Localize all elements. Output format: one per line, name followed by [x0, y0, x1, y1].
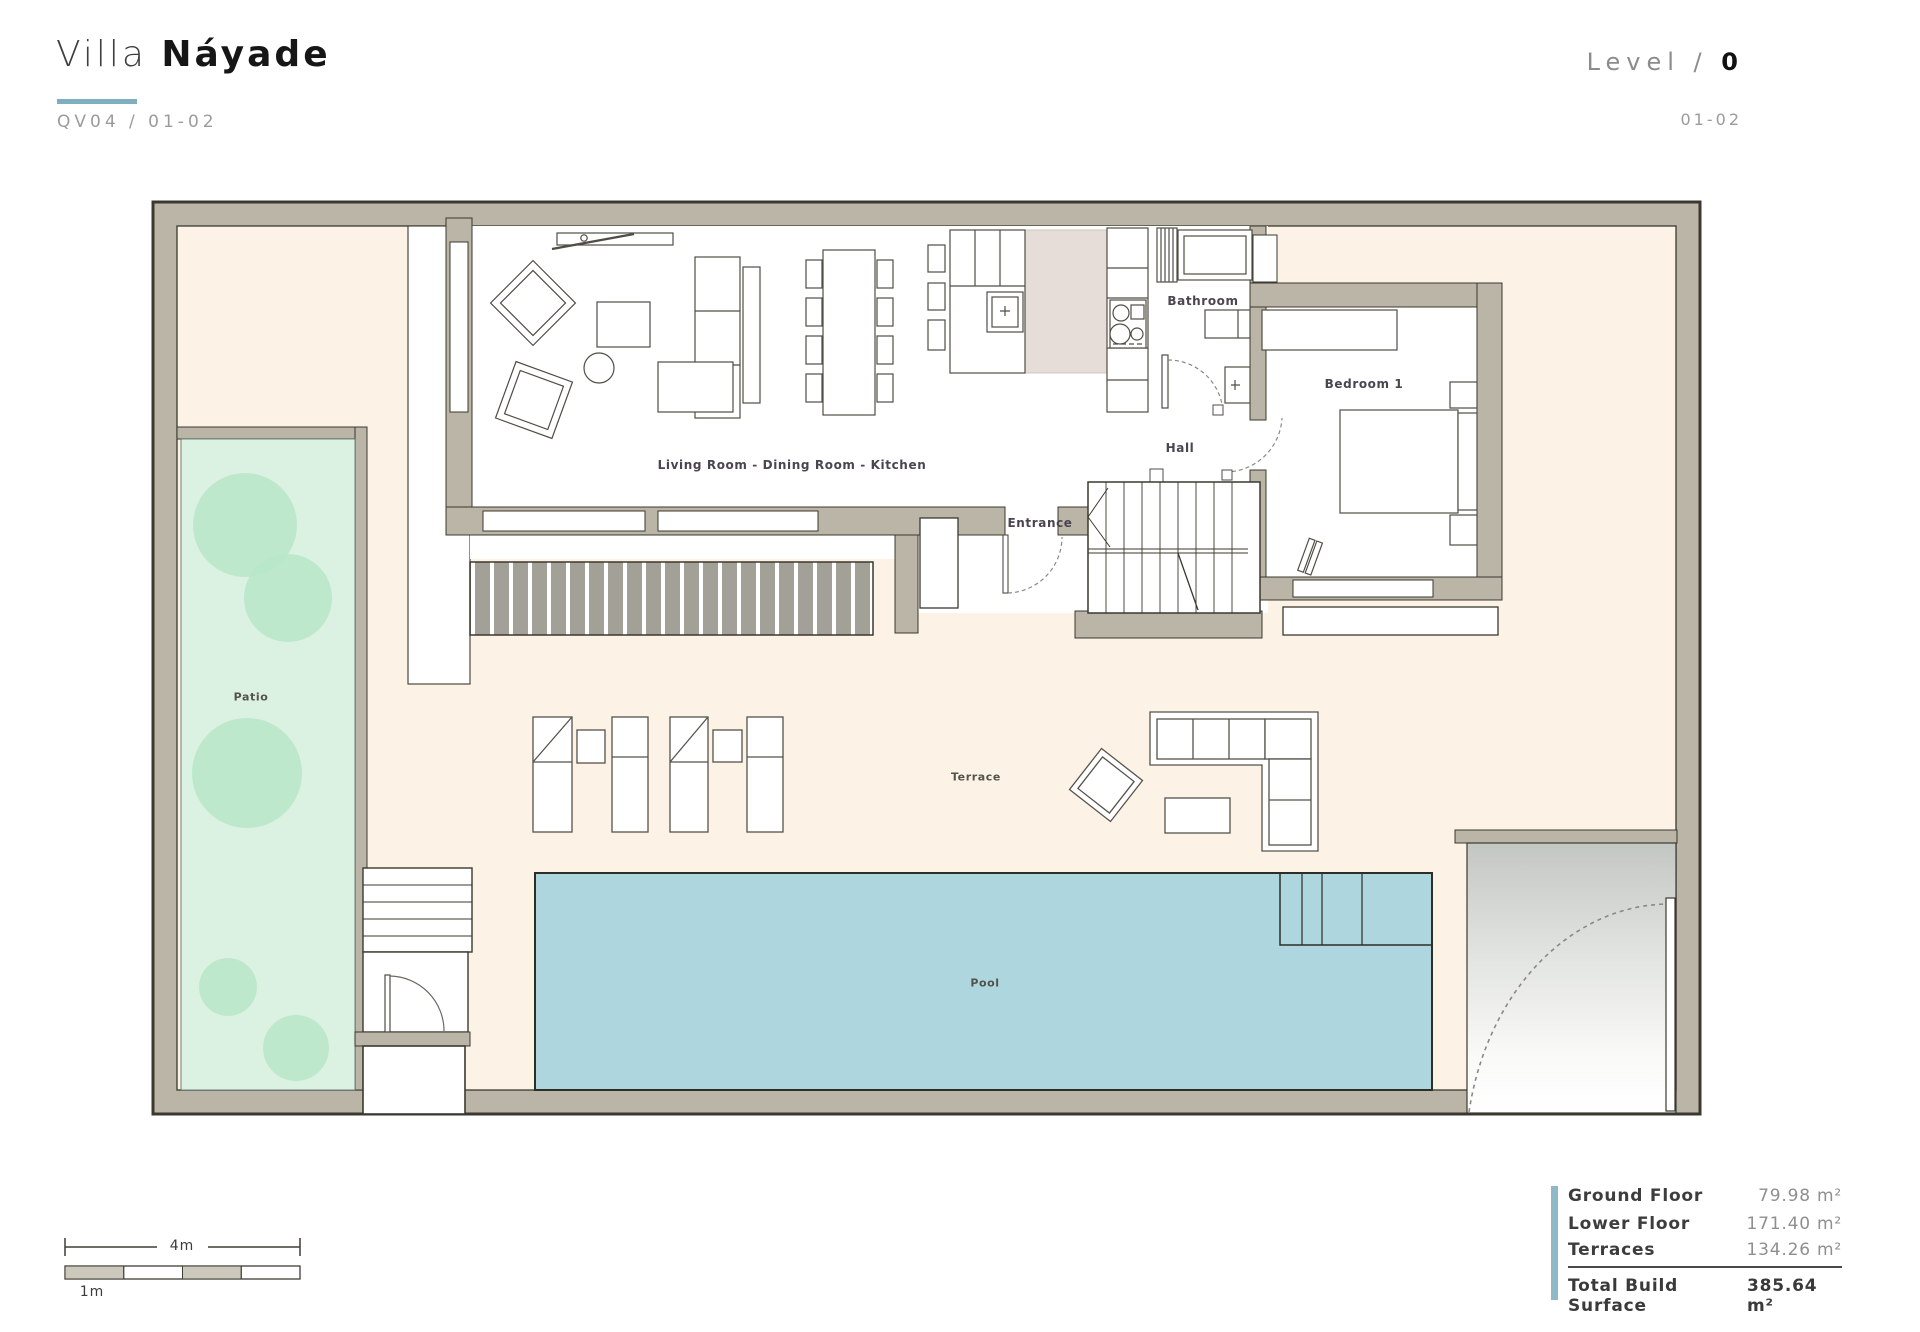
summary-divider — [1568, 1266, 1842, 1268]
summary-value: 171.40 m² — [1747, 1214, 1842, 1234]
bar-stool — [928, 245, 945, 272]
ottoman — [597, 302, 650, 347]
bedroom-south-window — [1293, 580, 1433, 597]
headboard — [1458, 413, 1477, 510]
sun-lounger-3 — [670, 717, 708, 832]
living-south-window-1 — [483, 511, 645, 531]
sun-lounger-1 — [533, 717, 572, 832]
label-patio: Patio — [234, 691, 269, 704]
summary-row-terraces: Terraces 134.26 m² — [1568, 1240, 1842, 1260]
entrance-door-leaf — [1003, 535, 1008, 593]
planter — [1283, 607, 1498, 635]
summary-label: Lower Floor — [1568, 1214, 1690, 1234]
summary-value: 134.26 m² — [1747, 1240, 1842, 1260]
shower-screen — [1157, 228, 1177, 282]
label-terrace: Terrace — [951, 771, 1001, 784]
level-value: 0 — [1721, 48, 1744, 76]
storage-room — [355, 952, 470, 1114]
lounger-table — [713, 730, 742, 762]
summary-label: Terraces — [1568, 1240, 1655, 1260]
driveway — [1455, 830, 1677, 1113]
side-table — [584, 353, 614, 383]
label-entrance: Entrance — [1007, 516, 1072, 530]
summary-row-lower-floor: Lower Floor 171.40 m² — [1568, 1214, 1842, 1234]
bar-stool — [928, 320, 945, 350]
floor-plan-sheet: Villa Náyade QV04 / 01-02 Level / 0 01-0… — [0, 0, 1920, 1332]
label-pool: Pool — [970, 977, 999, 990]
living-west-window — [450, 242, 468, 412]
staircase — [1088, 469, 1260, 613]
label-living-room: Living Room - Dining Room - Kitchen — [658, 458, 927, 472]
title-bold: Náyade — [161, 34, 330, 75]
pergola — [470, 562, 873, 635]
scale-minor-label: 1m — [80, 1284, 105, 1300]
summary-row-ground-floor: Ground Floor 79.98 m² — [1568, 1186, 1842, 1206]
level-label: Level / — [1587, 48, 1708, 76]
living-south-window-2 — [658, 511, 818, 531]
porch-box — [920, 518, 958, 608]
scale-major-label: 4m — [170, 1238, 195, 1254]
project-code: QV04 / 01-02 — [57, 112, 218, 132]
bed — [1340, 410, 1458, 513]
sheet-code: 01-02 — [1681, 110, 1743, 129]
title-light: Villa — [56, 34, 147, 75]
outdoor-coffee-table — [1165, 798, 1230, 833]
nightstand — [1450, 515, 1477, 545]
summary-label: Ground Floor — [1568, 1186, 1703, 1206]
summary-accent-bar — [1551, 1186, 1558, 1300]
summary-value: 79.98 m² — [1758, 1186, 1842, 1206]
sun-lounger-4 — [747, 717, 783, 832]
level-indicator: Level / 0 — [1587, 48, 1744, 76]
entry-box — [363, 1046, 465, 1114]
wardrobe — [1262, 310, 1397, 350]
page-title: Villa Náyade — [56, 34, 331, 75]
tv-console — [557, 233, 673, 245]
floor-plan-drawing — [0, 0, 1920, 1332]
bathroom-duct — [1253, 235, 1277, 282]
gate-leaf — [1666, 898, 1675, 1111]
bar-stool — [928, 283, 945, 310]
sun-lounger-2 — [612, 717, 648, 832]
label-bathroom: Bathroom — [1167, 294, 1238, 308]
label-bedroom-1: Bedroom 1 — [1325, 377, 1404, 391]
patio-stairs — [363, 868, 472, 952]
nightstand — [1450, 382, 1477, 408]
kitchen-floor — [1025, 230, 1107, 373]
bathroom-door-leaf — [1162, 355, 1168, 408]
summary-row-total: Total Build Surface 385.64 m² — [1568, 1276, 1842, 1316]
label-hall: Hall — [1166, 441, 1195, 455]
storage-door-leaf — [385, 975, 390, 1032]
title-underline — [57, 99, 137, 104]
summary-total-label: Total Build Surface — [1568, 1276, 1747, 1316]
summary-total-value: 385.64 m² — [1747, 1276, 1842, 1316]
lounger-table — [577, 730, 605, 763]
vanity — [1205, 310, 1250, 338]
